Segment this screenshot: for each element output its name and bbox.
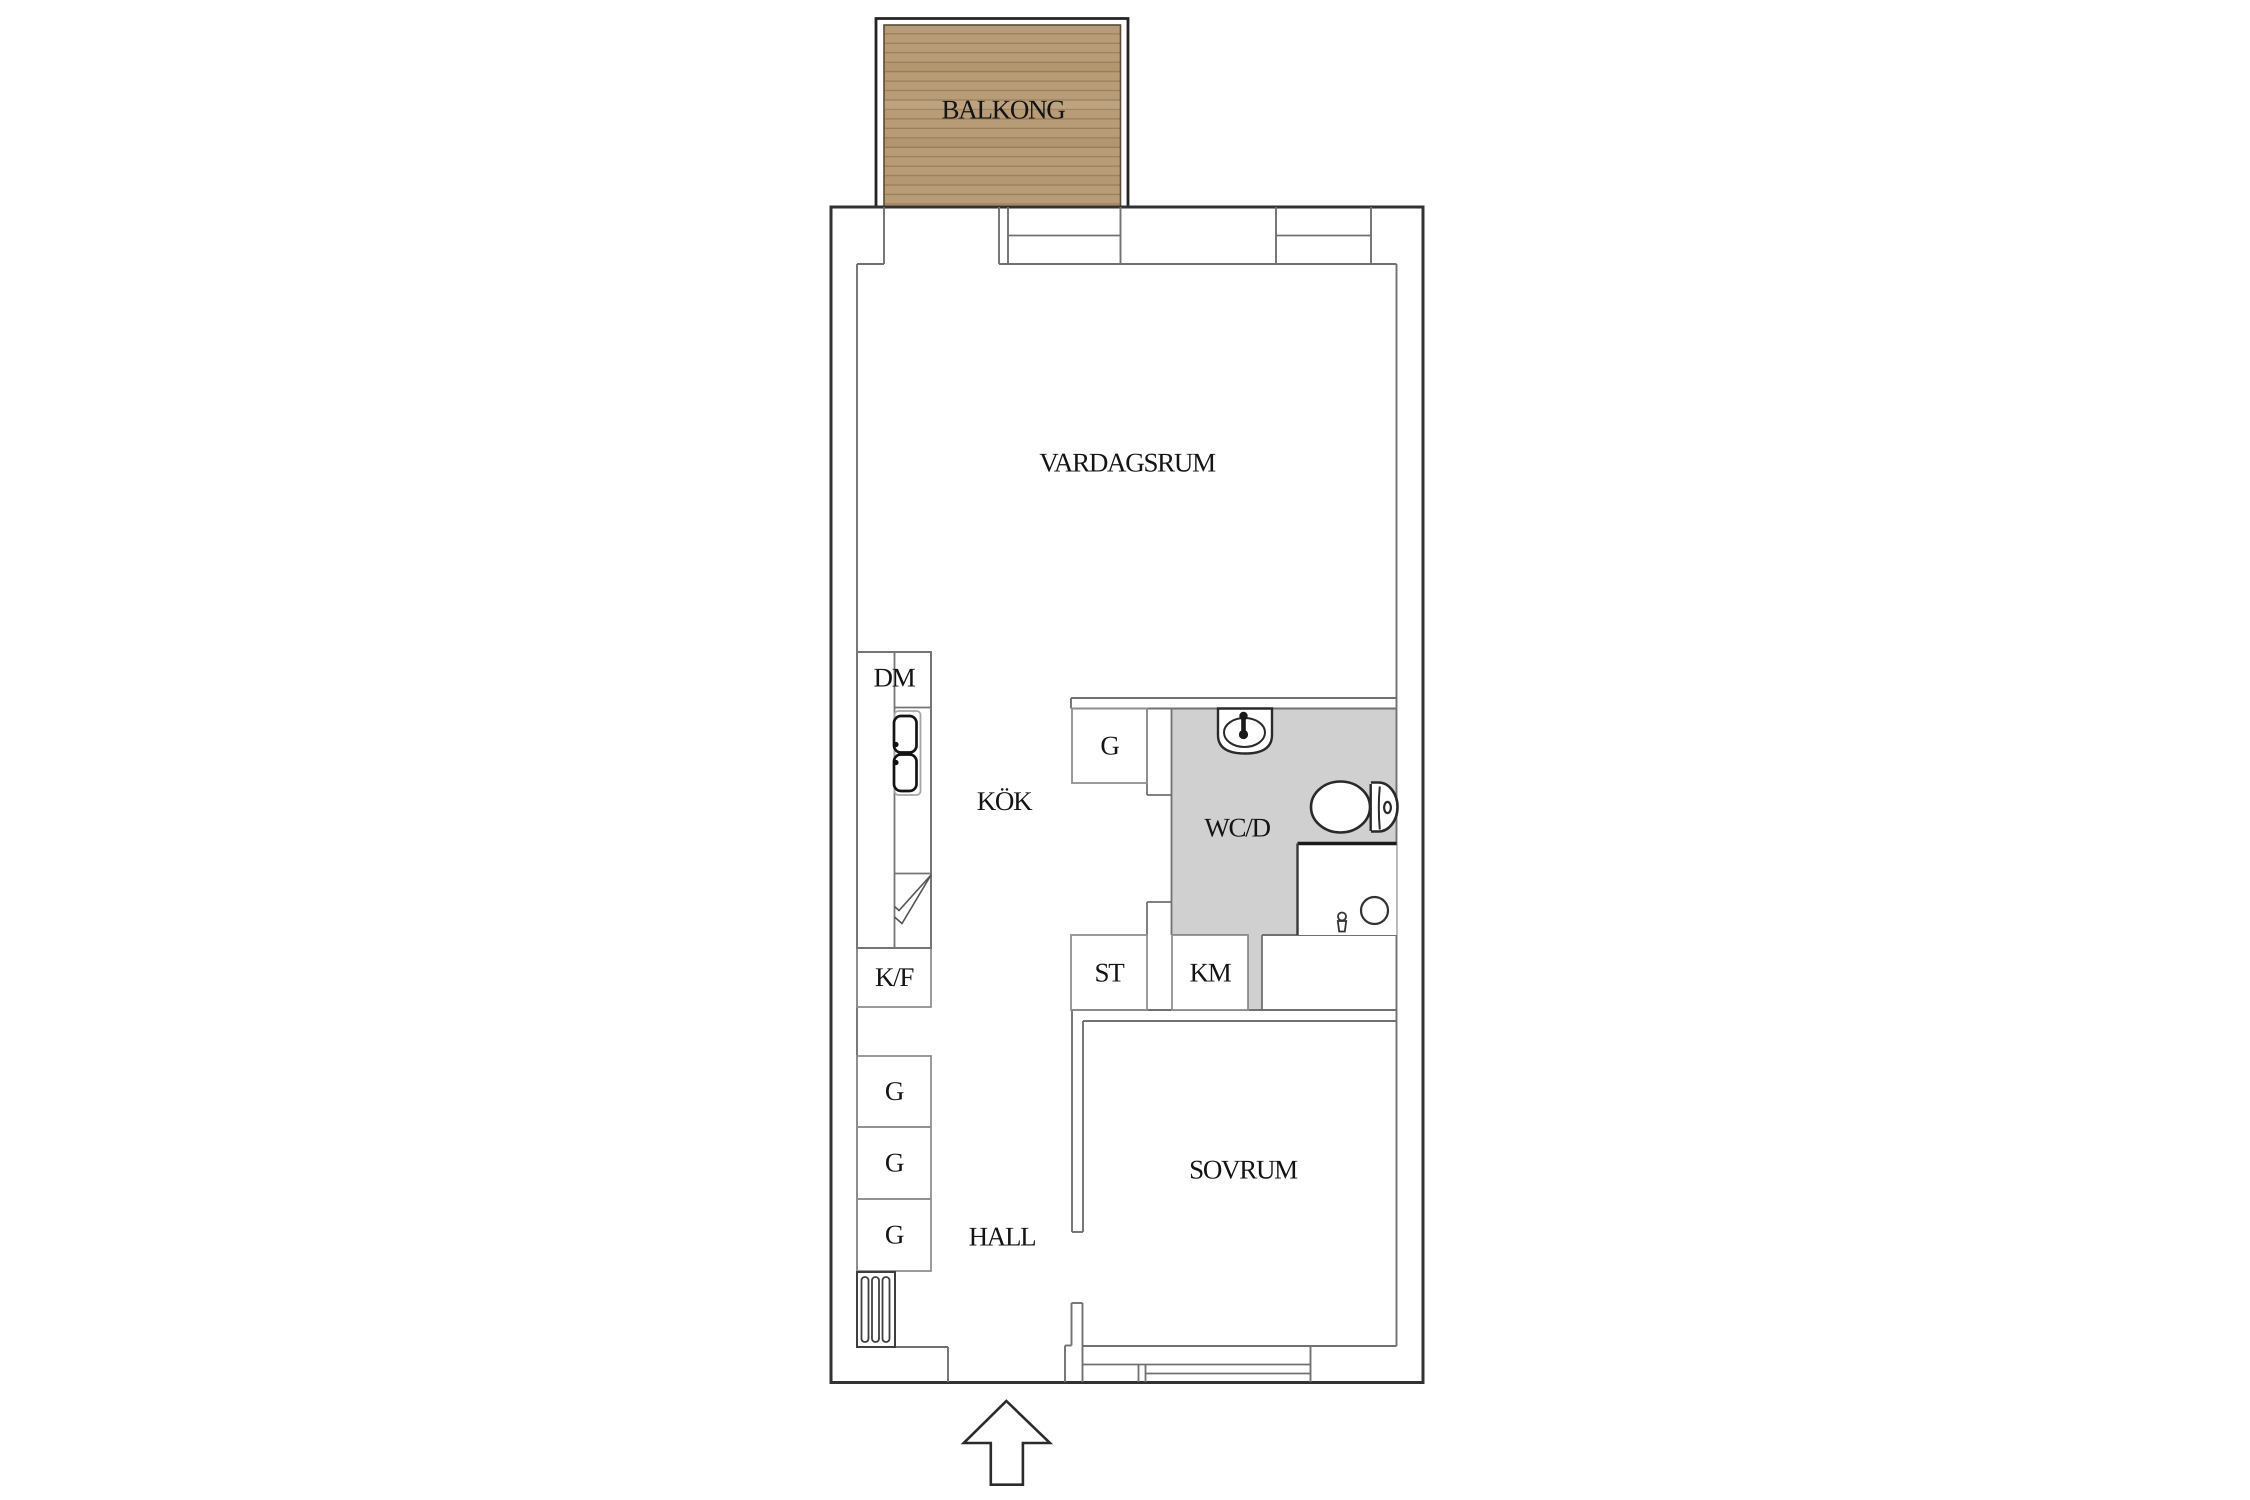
svg-text:KM: KM [1190,958,1232,988]
svg-text:BALKONG: BALKONG [942,95,1066,125]
svg-text:G: G [885,1148,904,1178]
svg-text:WC/D: WC/D [1204,813,1270,843]
svg-text:K/F: K/F [875,962,914,992]
svg-text:KÖK: KÖK [977,786,1033,816]
svg-text:SOVRUM: SOVRUM [1189,1155,1298,1185]
svg-text:VARDAGSRUM: VARDAGSRUM [1039,448,1216,478]
svg-text:G: G [1100,730,1119,760]
svg-text:DM: DM [874,663,916,693]
svg-text:G: G [885,1220,904,1250]
svg-text:G: G [885,1076,904,1106]
svg-text:HALL: HALL [969,1222,1036,1252]
svg-text:ST: ST [1095,958,1126,988]
